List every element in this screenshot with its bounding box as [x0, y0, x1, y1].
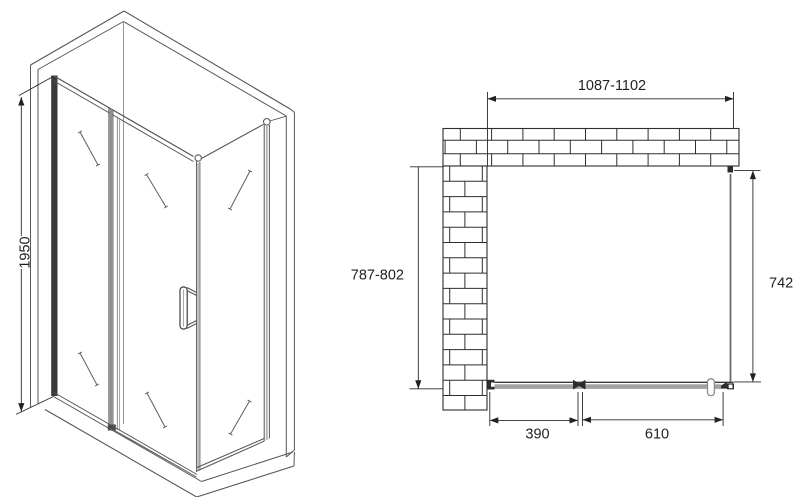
- svg-text:1950: 1950: [17, 236, 33, 268]
- svg-text:742: 742: [769, 276, 793, 292]
- svg-text:610: 610: [645, 427, 669, 443]
- svg-text:787-802: 787-802: [351, 268, 404, 284]
- svg-text:1087-1102: 1087-1102: [578, 78, 646, 94]
- svg-text:390: 390: [525, 427, 549, 443]
